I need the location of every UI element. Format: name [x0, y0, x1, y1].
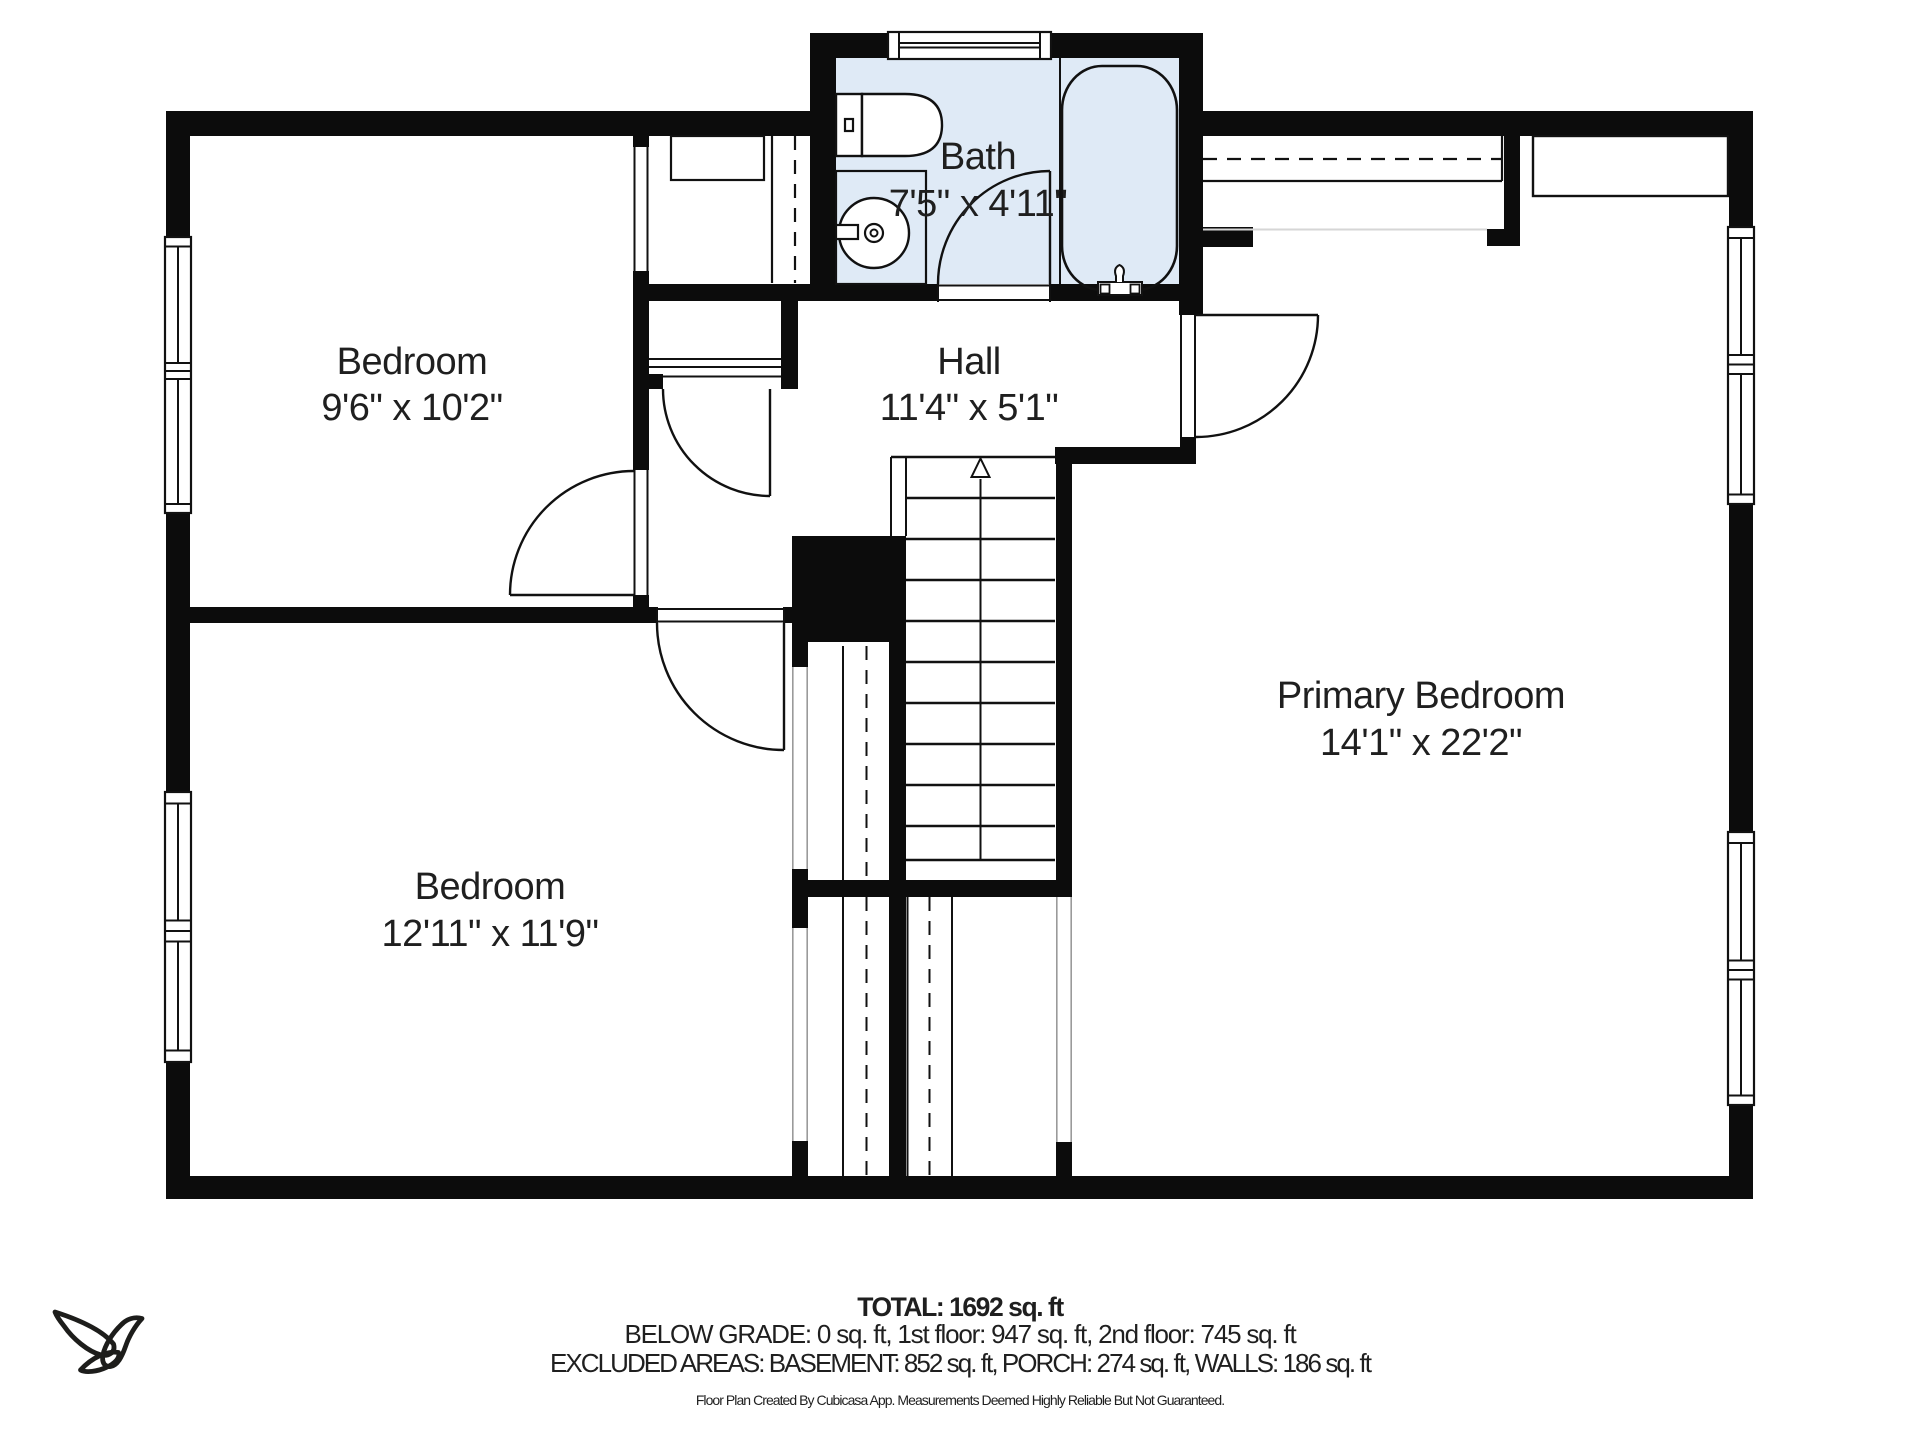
svg-text:Bedroom: Bedroom [337, 341, 488, 383]
svg-text:BELOW GRADE: 0 sq. ft, 1st flo: BELOW GRADE: 0 sq. ft, 1st floor: 947 sq… [624, 1319, 1297, 1349]
svg-text:14'1" x 22'2": 14'1" x 22'2" [1320, 722, 1522, 764]
svg-text:TOTAL: 1692 sq. ft: TOTAL: 1692 sq. ft [857, 1292, 1064, 1322]
svg-text:Floor Plan Created By Cubicasa: Floor Plan Created By Cubicasa App. Meas… [696, 1392, 1224, 1408]
svg-text:Hall: Hall [937, 341, 1000, 383]
svg-text:Primary Bedroom: Primary Bedroom [1277, 675, 1565, 717]
svg-text:Bath: Bath [940, 136, 1016, 178]
svg-text:11'4" x 5'1": 11'4" x 5'1" [880, 387, 1058, 429]
svg-text:EXCLUDED AREAS: BASEMENT: 852: EXCLUDED AREAS: BASEMENT: 852 sq. ft, PO… [550, 1348, 1373, 1378]
svg-text:Bedroom: Bedroom [415, 866, 566, 908]
svg-text:9'6" x 10'2": 9'6" x 10'2" [321, 387, 502, 429]
svg-text:12'11" x 11'9": 12'11" x 11'9" [382, 913, 599, 955]
svg-text:7'5" x 4'11": 7'5" x 4'11" [889, 183, 1067, 225]
